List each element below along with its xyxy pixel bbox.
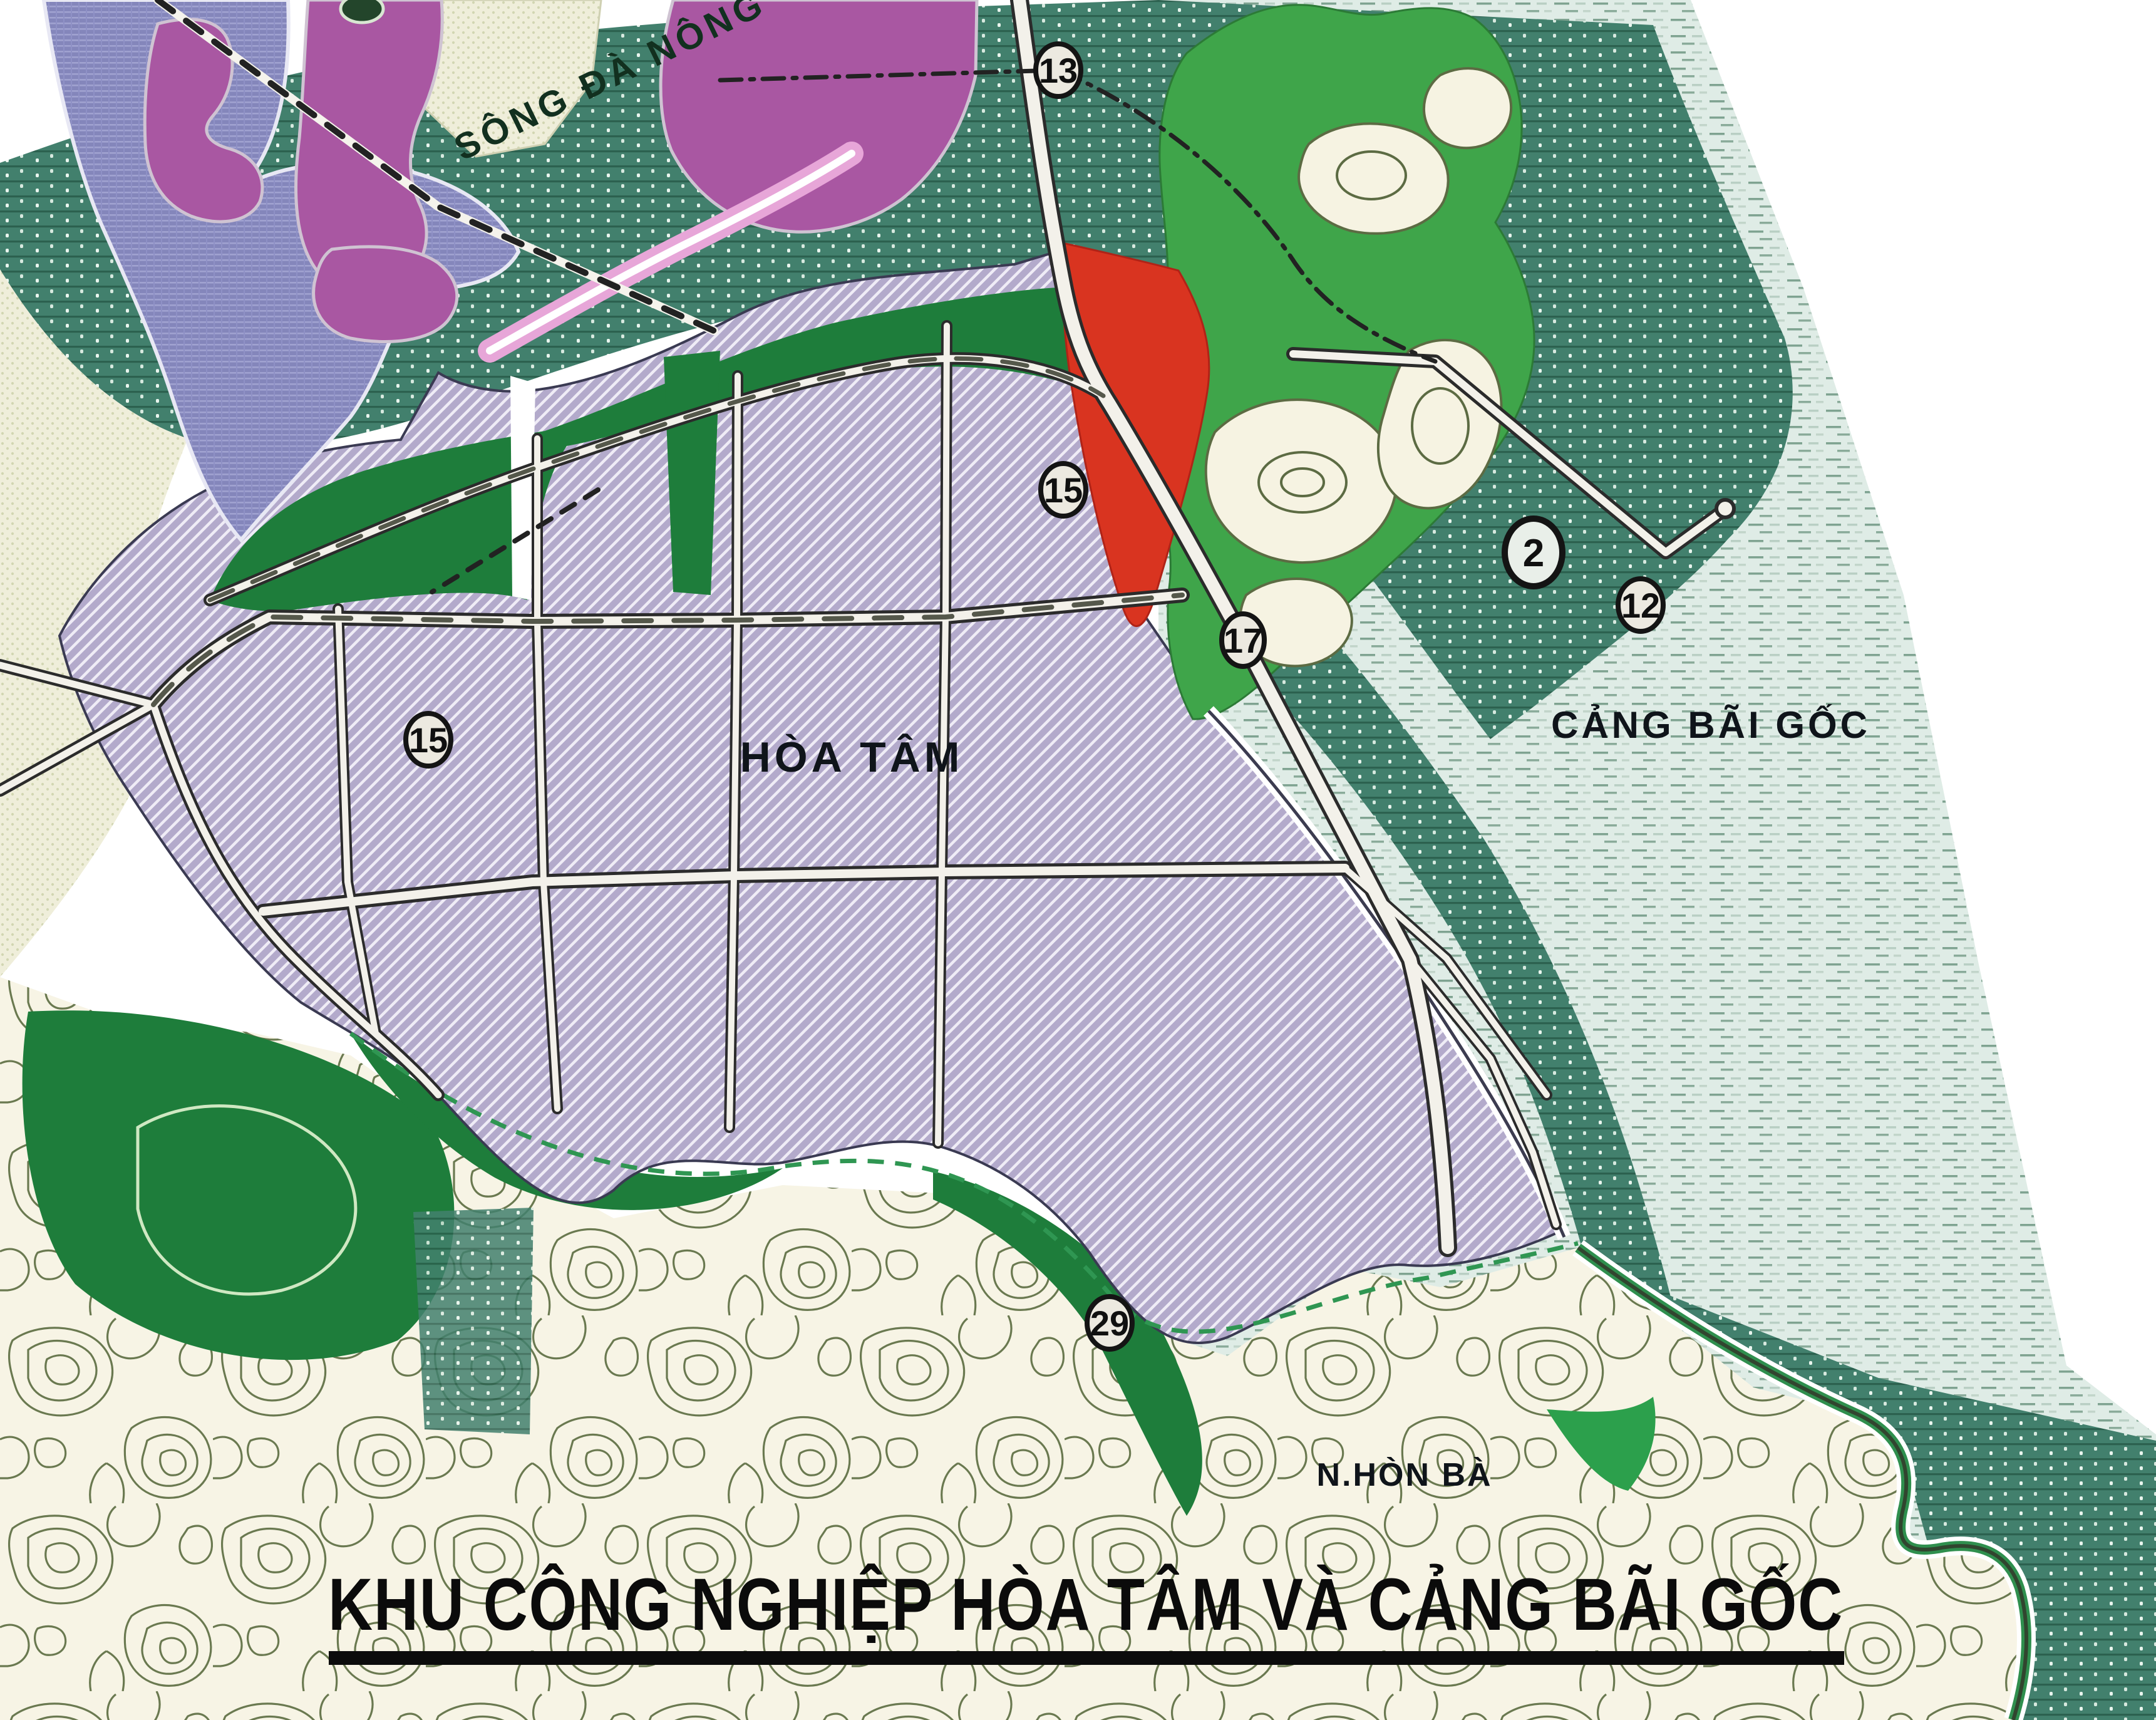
marker-value: 12 bbox=[1621, 586, 1660, 625]
port-label: CẢNG BÃI GỐC bbox=[1551, 704, 1870, 746]
marker-value: 2 bbox=[1523, 532, 1544, 575]
hill-blob bbox=[1299, 123, 1448, 233]
green-arm bbox=[664, 351, 720, 595]
map-marker-2: 2 bbox=[1505, 519, 1562, 586]
hill-blob bbox=[1206, 400, 1397, 562]
industrial-zone-label: HÒA TÂM bbox=[740, 733, 964, 781]
map-marker-29: 29 bbox=[1087, 1297, 1132, 1349]
map-marker-15-top: 15 bbox=[1041, 464, 1086, 516]
magenta-zone-3 bbox=[314, 247, 457, 342]
marker-value: 13 bbox=[1039, 51, 1078, 90]
map-title-underline bbox=[329, 1651, 1844, 1665]
jetty-head bbox=[1716, 500, 1734, 517]
map-marker-12: 12 bbox=[1618, 579, 1663, 631]
map-canvas: 13 15 2 12 17 15 29 SÔNG ĐÀ NÔNG HÒA TÂ bbox=[0, 0, 2156, 1720]
pond bbox=[341, 0, 383, 23]
map-marker-15-west: 15 bbox=[406, 713, 451, 766]
map-marker-17: 17 bbox=[1222, 614, 1264, 666]
aquaculture-patch bbox=[413, 1208, 534, 1434]
map-marker-13: 13 bbox=[1036, 44, 1081, 96]
marker-value: 15 bbox=[409, 720, 448, 760]
map-title: KHU CÔNG NGHIỆP HÒA TÂM VÀ CẢNG BÃI GỐC bbox=[328, 1563, 1844, 1646]
marker-value: 15 bbox=[1044, 470, 1083, 510]
mountain-label: N.HÒN BÀ bbox=[1316, 1457, 1492, 1493]
marker-value: 17 bbox=[1224, 621, 1262, 660]
hill-blob bbox=[1424, 68, 1511, 148]
marker-value: 29 bbox=[1090, 1303, 1129, 1343]
